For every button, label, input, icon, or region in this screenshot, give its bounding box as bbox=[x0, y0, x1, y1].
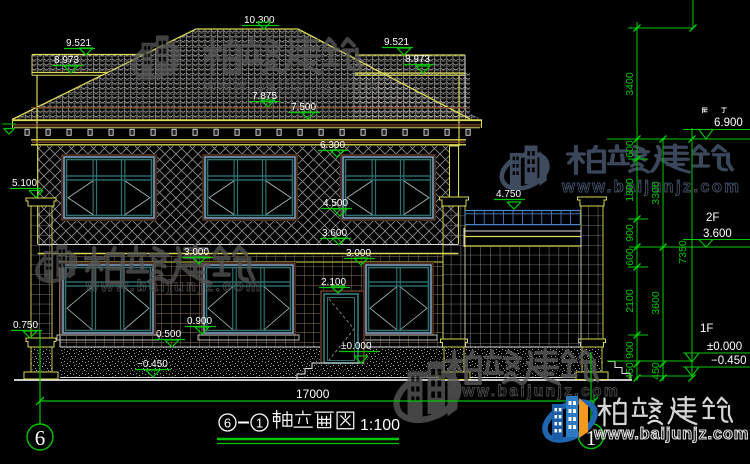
svg-text:±0.000: ±0.000 bbox=[341, 341, 372, 352]
svg-text:4.500: 4.500 bbox=[323, 198, 348, 209]
svg-text:1F: 1F bbox=[700, 323, 713, 335]
svg-text:9.521: 9.521 bbox=[384, 37, 409, 48]
svg-text:7350: 7350 bbox=[677, 240, 689, 264]
svg-text:8.973: 8.973 bbox=[405, 54, 430, 65]
svg-text:www.baijunjz.com: www.baijunjz.com bbox=[593, 425, 749, 443]
svg-text:1:100: 1:100 bbox=[360, 417, 400, 434]
svg-text:6.900: 6.900 bbox=[714, 117, 743, 129]
svg-text:±0.000: ±0.000 bbox=[707, 341, 742, 353]
svg-text:600: 600 bbox=[624, 248, 636, 266]
svg-text:4.750: 4.750 bbox=[496, 189, 521, 200]
svg-text:www.baijunjz.com: www.baijunjz.com bbox=[85, 278, 263, 295]
svg-text:−0.450: −0.450 bbox=[137, 359, 168, 370]
svg-text:600: 600 bbox=[624, 140, 636, 158]
svg-text:1: 1 bbox=[256, 416, 263, 431]
svg-text:3.000: 3.000 bbox=[184, 247, 209, 258]
svg-text:450: 450 bbox=[650, 362, 662, 380]
svg-text:8.973: 8.973 bbox=[54, 55, 79, 66]
svg-text:0.500: 0.500 bbox=[156, 329, 181, 340]
svg-text:2100: 2100 bbox=[624, 289, 636, 313]
svg-text:7.500: 7.500 bbox=[291, 102, 316, 113]
svg-text:1800: 1800 bbox=[624, 178, 636, 202]
svg-text:3.600: 3.600 bbox=[322, 228, 347, 239]
svg-text:900: 900 bbox=[624, 224, 636, 242]
svg-text:−0.450: −0.450 bbox=[711, 355, 747, 367]
svg-text:900: 900 bbox=[624, 341, 636, 359]
svg-text:3600: 3600 bbox=[650, 291, 662, 315]
svg-text:3300: 3300 bbox=[650, 181, 662, 205]
svg-text:6: 6 bbox=[224, 416, 231, 431]
svg-text:9.521: 9.521 bbox=[66, 38, 91, 49]
svg-text:3.600: 3.600 bbox=[703, 228, 732, 240]
svg-text:6: 6 bbox=[35, 426, 46, 450]
svg-text:0.750: 0.750 bbox=[13, 320, 38, 331]
svg-text:17000: 17000 bbox=[296, 387, 330, 401]
svg-text:3400: 3400 bbox=[624, 72, 636, 96]
svg-text:0.900: 0.900 bbox=[187, 316, 212, 327]
svg-text:5.100: 5.100 bbox=[12, 178, 37, 189]
svg-text:2F: 2F bbox=[706, 212, 719, 224]
svg-text:3.000: 3.000 bbox=[346, 248, 371, 259]
svg-text:www.baijunjz.com: www.baijunjz.com bbox=[202, 77, 381, 95]
svg-text:6.300: 6.300 bbox=[320, 140, 345, 151]
svg-text:450: 450 bbox=[624, 362, 636, 380]
